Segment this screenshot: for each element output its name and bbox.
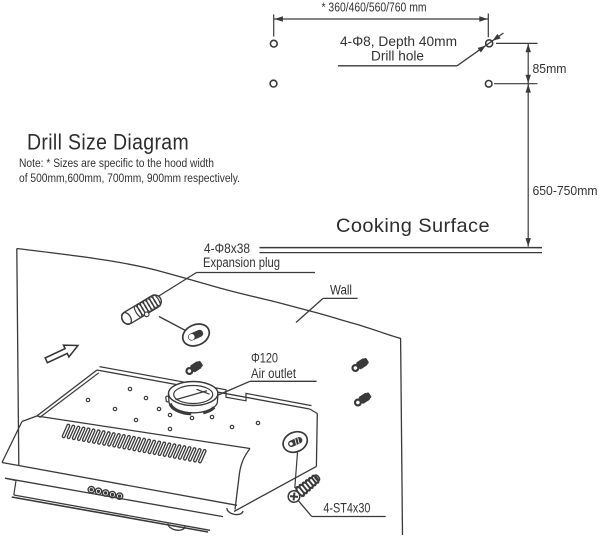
svg-text:Expansion plug: Expansion plug xyxy=(203,255,280,270)
svg-text:650-750mm: 650-750mm xyxy=(533,183,598,198)
svg-text:85mm: 85mm xyxy=(533,61,567,76)
svg-text:* 360/460/560/760 mm: * 360/460/560/760 mm xyxy=(322,1,427,15)
svg-text:Drill Size Diagram: Drill Size Diagram xyxy=(27,130,189,155)
svg-text:4-Φ8x38: 4-Φ8x38 xyxy=(204,241,250,256)
svg-text:of 500mm,600mm, 700mm, 900mm r: of 500mm,600mm, 700mm, 900mm respectivel… xyxy=(19,171,240,185)
svg-text:Drill hole: Drill hole xyxy=(371,48,424,64)
svg-text:Φ120: Φ120 xyxy=(251,351,278,366)
svg-text:Wall: Wall xyxy=(330,283,352,298)
svg-text:Air outlet: Air outlet xyxy=(251,366,296,381)
svg-text:Note: * Sizes are specific to: Note: * Sizes are specific to the hood w… xyxy=(19,156,214,170)
svg-text:4-ST4x30: 4-ST4x30 xyxy=(323,501,370,516)
svg-text:Cooking Surface: Cooking Surface xyxy=(336,215,490,237)
